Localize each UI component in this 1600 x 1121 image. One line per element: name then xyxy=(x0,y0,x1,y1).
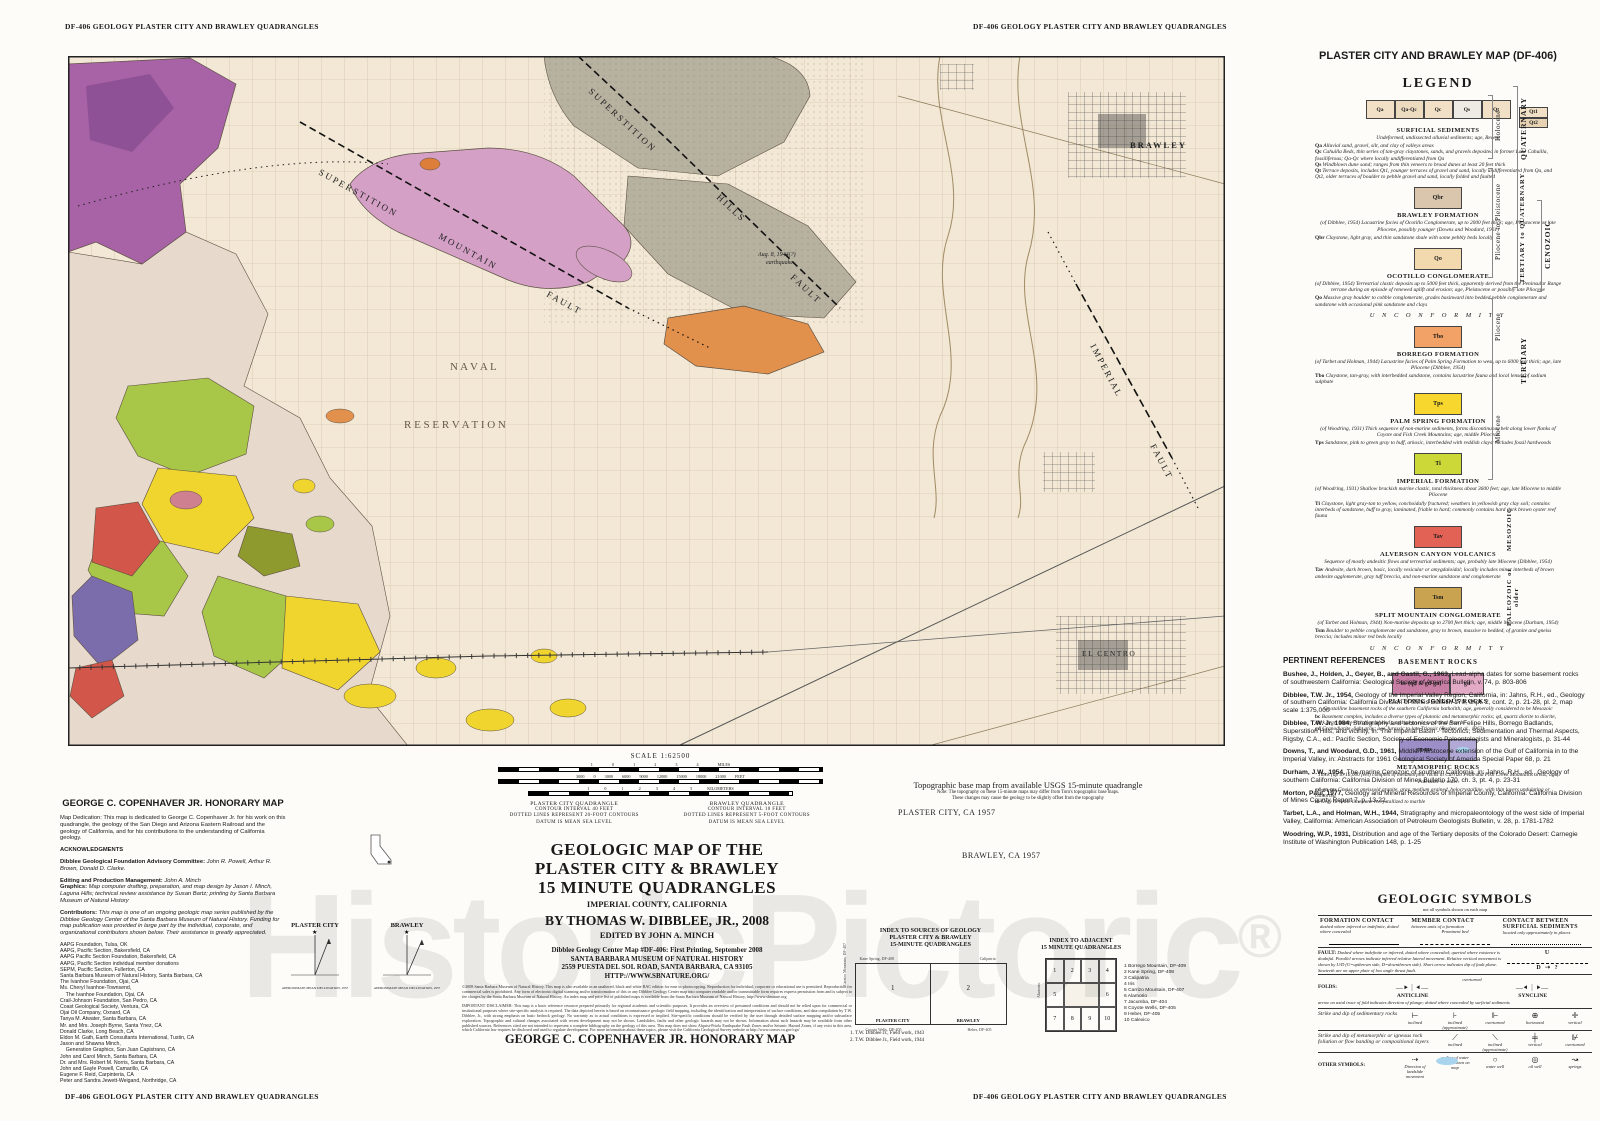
map-title-line1: GEOLOGIC MAP OF THE xyxy=(462,840,852,859)
foliation-symbol: ⟋inclined xyxy=(1438,1033,1472,1052)
region-green-4 xyxy=(306,516,334,532)
city-brawley xyxy=(1068,92,1186,178)
syncline-glyph: —⯇｜⯈— xyxy=(1516,983,1548,993)
author-line: BY THOMAS W. DIBBLEE, JR., 2008 xyxy=(462,913,852,929)
symbols-panel: GEOLOGIC SYMBOLS not all symbols shown o… xyxy=(1318,891,1592,1079)
unit-chip: Qbr xyxy=(1414,187,1462,209)
contact-line-solid xyxy=(1329,937,1399,945)
fault-row: FAULT: Dashed where indefinite or inferr… xyxy=(1318,947,1592,974)
era-quaternary: QUATERNARY xyxy=(1519,86,1528,171)
formation-heading: PALM SPRING FORMATION xyxy=(1313,418,1563,425)
age-miocene: Miocene xyxy=(1494,382,1502,477)
age-holocene: Holocene xyxy=(1494,95,1502,157)
references-heading: PERTINENT REFERENCES xyxy=(1283,656,1585,665)
age-bracket-2 xyxy=(1488,168,1493,278)
unit-chip: Ti xyxy=(1414,453,1462,475)
other-symbol: ⇢Direction of landslide movement xyxy=(1398,1055,1432,1079)
map-title-line2: PLASTER CITY & BRAWLEY xyxy=(462,859,852,878)
honorary-footer: GEORGE C. COPENHAVER JR. HONORARY MAP xyxy=(400,1032,900,1047)
scale-block: SCALE 1:62500 1 0 1 2 3 4 MILES 3000 0 3… xyxy=(488,752,833,826)
declination-plaster-city: PLASTER CITY ★ APPROXIMATE MEAN DECLINAT… xyxy=(276,922,354,990)
source-cell-plaster-city: 1 PLASTER CITY xyxy=(856,964,932,1024)
geologic-map-svg: S U P E R S T I T I O N M O U N T A I N … xyxy=(68,56,1225,746)
era-bracket-1 xyxy=(1513,86,1518,288)
legend-panel-title: PLASTER CITY AND BRAWLEY MAP (DF-406) xyxy=(1283,50,1593,62)
strike-sed-row: Strike and dip of sedimentary rocks ⊢inc… xyxy=(1318,1008,1592,1030)
other-symbols-label: OTHER SYMBOLS: xyxy=(1318,1062,1376,1072)
page-footer-left: DF-406 GEOLOGY PLASTER CITY AND BRAWLEY … xyxy=(65,1092,319,1101)
formation-heading: ALVERSON CANYON VOLCANICS xyxy=(1313,551,1563,558)
index-sources: INDEX TO SOURCES OF GEOLOGY PLASTER CITY… xyxy=(838,928,1023,1044)
formation-block: Tav ALVERSON CANYON VOLCANICS Sequence o… xyxy=(1313,526,1563,580)
label-earthquake-2: earthquake xyxy=(766,260,793,266)
region-yellow-5 xyxy=(416,658,456,678)
references-section: PERTINENT REFERENCES Bushee, J., Holden,… xyxy=(1283,656,1585,851)
svg-text:★: ★ xyxy=(312,929,317,936)
formation-block: Ti IMPERIAL FORMATION (of Woodring, 1931… xyxy=(1313,453,1563,519)
geologic-map: S U P E R S T I T I O N M O U N T A I N … xyxy=(68,56,1225,746)
brawley-contour-note: BRAWLEY QUADRANGLECONTOUR INTERVAL 10 FE… xyxy=(661,801,834,826)
strike-dip-symbol: ⊦inclined (approximate) xyxy=(1438,1011,1472,1030)
declination-diagrams: PLASTER CITY ★ APPROXIMATE MEAN DECLINAT… xyxy=(276,922,446,990)
publisher-lines: Dibblee Geology Center Map #DF-406: Firs… xyxy=(462,946,852,980)
reference-item: Durham, J.W., 1954, The marine Cenozoic … xyxy=(1283,769,1585,785)
reference-item: Bushee, J., Holden, J., Geyer, B., and G… xyxy=(1283,671,1585,687)
source-cell-brawley: 2 BRAWLEY xyxy=(931,964,1006,1024)
page-footer-right: DF-406 GEOLOGY PLASTER CITY AND BRAWLEY … xyxy=(973,1092,1227,1101)
declination-figure-1: ★ xyxy=(285,929,345,981)
unit-chip: Qs xyxy=(1453,100,1482,119)
base-map-note: Topographic base map from available USGS… xyxy=(878,780,1178,801)
california-inset xyxy=(368,834,394,866)
unit-chip: Tbo xyxy=(1414,326,1462,348)
copyright-fine-print: ©2008 Santa Barbara Museum of Natural Hi… xyxy=(462,985,852,999)
reference-item: Downs, T., and Woodard, G.D., 1961, Midd… xyxy=(1283,748,1585,764)
adjacent-quad-item: 10 Calexico xyxy=(1124,1018,1234,1024)
foliation-symbol: ⟍inclined (approximate) xyxy=(1478,1033,1512,1052)
declination-brawley: BRAWLEY ★ APPROXIMATE MEAN DECLINATION, … xyxy=(368,922,446,990)
adjacent-quad-list: 1 Borrego Mountain, DF-4092 Kane Spring,… xyxy=(1124,964,1234,1024)
foliation-symbol: ╪vertical xyxy=(1518,1033,1552,1052)
region-orange-spot xyxy=(420,158,440,170)
dedication-text: Map Dedication: This map is dedicated to… xyxy=(60,815,286,842)
label-brawley: BRAWLEY xyxy=(1130,140,1187,150)
water-body-glyph xyxy=(1436,1057,1458,1065)
other-symbol: ↝springs xyxy=(1558,1055,1592,1079)
label-reservation: R E S E R V A T I O N xyxy=(404,419,506,431)
index-adjacent: INDEX TO ADJACENT 15 MINUTE QUADRANGLES … xyxy=(1036,938,1126,1032)
unit-chip: Tav xyxy=(1414,526,1462,548)
anticline-label: ANTICLINE xyxy=(1397,993,1429,999)
strike-dip-symbol: ⊕horizontal xyxy=(1518,1011,1552,1030)
this-map-cell xyxy=(1064,983,1099,1007)
scale-bar-miles xyxy=(498,767,823,772)
map-title-line3: 15 MINUTE QUADRANGLES xyxy=(462,878,852,897)
unit-chip: Qa xyxy=(1366,100,1395,119)
page-header-left: DF-406 GEOLOGY PLASTER CITY AND BRAWLEY … xyxy=(65,22,319,31)
region-orange-small xyxy=(326,409,354,423)
label-el-centro: EL CENTRO xyxy=(1082,649,1136,658)
syncline-label: SYNCLINE xyxy=(1518,993,1547,999)
foliation-symbol: ⊮overturned xyxy=(1558,1033,1592,1052)
era-tertiary: TERTIARY xyxy=(1519,318,1528,403)
disclaimer-fine-print: IMPORTANT DISCLAIMER: This map is a basi… xyxy=(462,1004,852,1033)
era-paleozoic: PALEOZOIC or older xyxy=(1506,564,1520,630)
formation-heading: IMPERIAL FORMATION xyxy=(1313,478,1563,485)
age-bracket-3 xyxy=(1488,298,1493,480)
contributors-list: AAPG Foundation, Tulsa, OKAAPG, Pacific … xyxy=(60,942,286,1085)
age-bracket-1 xyxy=(1488,95,1493,159)
city-westmorland xyxy=(940,64,974,90)
strike-met-row: Strike and dip of metamorphic or igneous… xyxy=(1318,1030,1592,1052)
label-naval: N A V A L xyxy=(450,361,497,373)
era-tert-quat: TERTIARY to QUATERNARY xyxy=(1519,172,1526,284)
adjacent-grid: 1 2 3 4 5 6 7 8 9 10 xyxy=(1045,958,1117,1032)
references-list: Bushee, J., Holden, J., Geyer, B., and G… xyxy=(1283,671,1585,846)
contact-line-dotted xyxy=(1511,937,1581,945)
scale-bar-km xyxy=(528,791,793,796)
honorary-title: GEORGE C. COPENHAVER JR. HONORARY MAP xyxy=(60,798,286,809)
unit-chip: Qo xyxy=(1414,248,1462,270)
region-yellow-3 xyxy=(293,479,315,493)
county-line: IMPERIAL COUNTY, CALIFORNIA xyxy=(462,899,852,909)
region-yellow-4 xyxy=(344,684,396,708)
reference-item: Dibblee, T.W. Jr., 1954, Geology of the … xyxy=(1283,692,1585,715)
region-yellow-6 xyxy=(466,709,514,731)
era-cenozoic: CENOZOIC xyxy=(1543,200,1552,290)
era-bracket-2 xyxy=(1537,200,1542,292)
honorary-section: GEORGE C. COPENHAVER JR. HONORARY MAP Ma… xyxy=(60,798,286,1085)
contacts-row: FORMATION CONTACT dashed where inferred … xyxy=(1318,915,1592,947)
unit-chip: Tsm xyxy=(1414,587,1462,609)
symbols-title: GEOLOGIC SYMBOLS xyxy=(1318,891,1592,907)
page-header-right: DF-406 GEOLOGY PLASTER CITY AND BRAWLEY … xyxy=(973,22,1227,31)
anticline-glyph: —⯈｜⯇— xyxy=(1396,983,1428,993)
reference-item: Dibblee, T.W. Jr, 1984, Stratigraphy and… xyxy=(1283,720,1585,743)
reference-item: Woodring, W.P., 1931, Distribution and a… xyxy=(1283,831,1585,847)
fault-glyph: U D ⇢ ? xyxy=(1502,950,1592,974)
label-earthquake-1: Aug. 8, 1944(?) xyxy=(757,251,796,258)
plaster-city-contour-note: PLASTER CITY QUADRANGLECONTOUR INTERVAL … xyxy=(488,801,661,826)
region-yellow-7 xyxy=(550,699,586,717)
contributor-item: Peter and Sandra Jewett-Weigand, Northri… xyxy=(60,1078,286,1084)
sources-box: Kane Spring, DF-408 Calipatria Carrizo M… xyxy=(855,963,1007,1025)
age-pliocene: Pliocene xyxy=(1494,298,1502,356)
location-dot xyxy=(388,861,391,864)
unconformity-label: U N C O N F O R M I T Y xyxy=(1313,645,1563,652)
unit-chip: Qa-Qc xyxy=(1395,100,1424,119)
other-symbols-row: OTHER SYMBOLS: ⇢Direction of landslide m… xyxy=(1318,1052,1592,1079)
other-symbol: ◎oil well xyxy=(1518,1055,1552,1079)
reference-item: Morton, Paul, 1977, Geology and Mineral … xyxy=(1283,790,1585,806)
strike-dip-symbol: ⊢inclined xyxy=(1398,1011,1432,1030)
title-block: GEOLOGIC MAP OF THE PLASTER CITY & BRAWL… xyxy=(462,840,852,1037)
folds-label: FOLDS: xyxy=(1318,984,1352,992)
city-imperial xyxy=(1043,452,1095,492)
map-sheet: DF-406 GEOLOGY PLASTER CITY AND BRAWLEY … xyxy=(0,0,1600,1121)
editor-line: EDITED BY JOHN A. MINCH xyxy=(462,930,852,940)
contact-line-dashed xyxy=(1420,937,1490,945)
formation-block: Tsm SPLIT MOUNTAIN CONGLOMERATE (of Tarb… xyxy=(1313,587,1563,652)
region-yellow-8 xyxy=(531,649,557,663)
scale-bar-feet xyxy=(498,779,823,784)
reference-item: Tarbet, L.A., and Holman, W.H., 1944, St… xyxy=(1283,810,1585,826)
acknowledgments-heading: ACKNOWLEDGMENTS xyxy=(60,847,286,854)
region-pink-small xyxy=(170,491,202,509)
source-notes: 1. T.W. Dibblee Jr., Field work, 1943 2.… xyxy=(850,1031,1023,1044)
surficial-contact-label: CONTACT BETWEEN SURFICIAL SEDIMENTS xyxy=(1503,918,1590,930)
age-plio-pleist: Pliocene to Pleistocene xyxy=(1494,168,1502,276)
brawley-quad-date: BRAWLEY, CA 1957 xyxy=(962,851,1041,860)
strike-dip-symbol: ✛vertical xyxy=(1558,1011,1592,1030)
unit-chip: Tps xyxy=(1414,393,1462,415)
formation-heading: SPLIT MOUNTAIN CONGLOMERATE xyxy=(1313,612,1563,619)
era-mesozoic: MESOZOIC xyxy=(1506,498,1513,560)
declination-figure-2: ★ xyxy=(377,929,437,981)
strike-dip-symbol: ⊩overturned xyxy=(1478,1011,1512,1030)
folds-row: FOLDS: overturned —⯈｜⯇——⯇｜⯈— ANTICLINESY… xyxy=(1318,974,1592,999)
scale-title: SCALE 1:62500 xyxy=(488,752,833,760)
other-symbol: ○water well xyxy=(1478,1055,1512,1079)
svg-text:★: ★ xyxy=(404,929,409,936)
plaster-city-quad-date: PLASTER CITY, CA 1957 xyxy=(898,808,995,817)
unit-chip: Qc xyxy=(1424,100,1453,119)
